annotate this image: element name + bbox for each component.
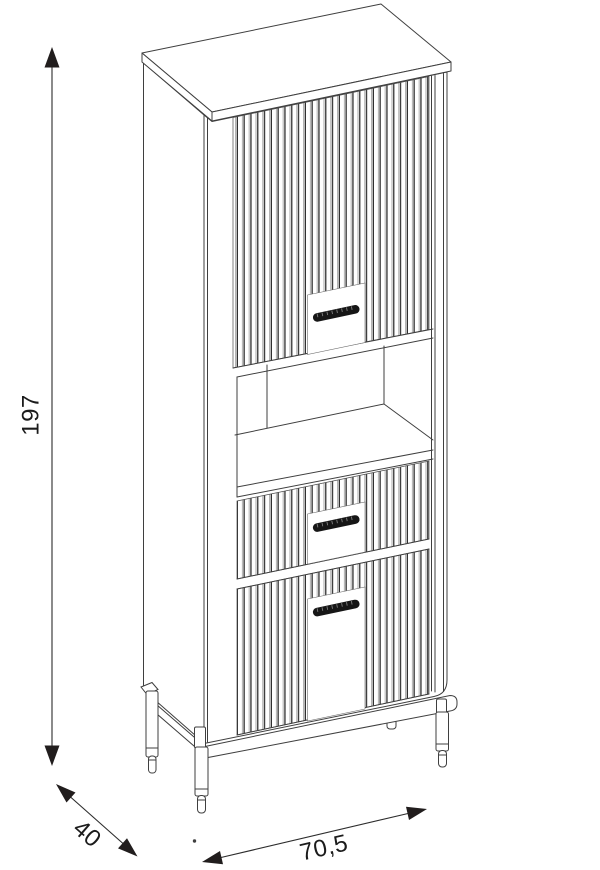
cabinet-dimension-drawing: 197 40 70,5 bbox=[0, 0, 600, 870]
width-dimension: 70,5 bbox=[202, 807, 427, 867]
back-left-leg bbox=[141, 683, 158, 774]
front-left-leg bbox=[195, 727, 209, 813]
front-right-leg bbox=[436, 699, 449, 767]
width-arrowhead-left bbox=[202, 851, 223, 864]
side-panel-left bbox=[144, 63, 205, 743]
height-dimension-label: 197 bbox=[18, 394, 45, 436]
floor-dot-artifact bbox=[193, 839, 196, 842]
depth-arrowhead-upleft bbox=[56, 784, 76, 803]
dimension-diagram: 197 40 70,5 bbox=[0, 0, 600, 870]
depth-dimension-label: 40 bbox=[68, 815, 107, 854]
height-dimension: 197 bbox=[18, 47, 60, 766]
width-dimension-label: 70,5 bbox=[297, 829, 351, 866]
width-arrowhead-right bbox=[406, 807, 427, 820]
depth-dimension: 40 bbox=[56, 784, 138, 857]
height-arrowhead-up bbox=[45, 47, 60, 68]
cabinet bbox=[141, 4, 457, 843]
height-arrowhead-down bbox=[45, 746, 60, 767]
